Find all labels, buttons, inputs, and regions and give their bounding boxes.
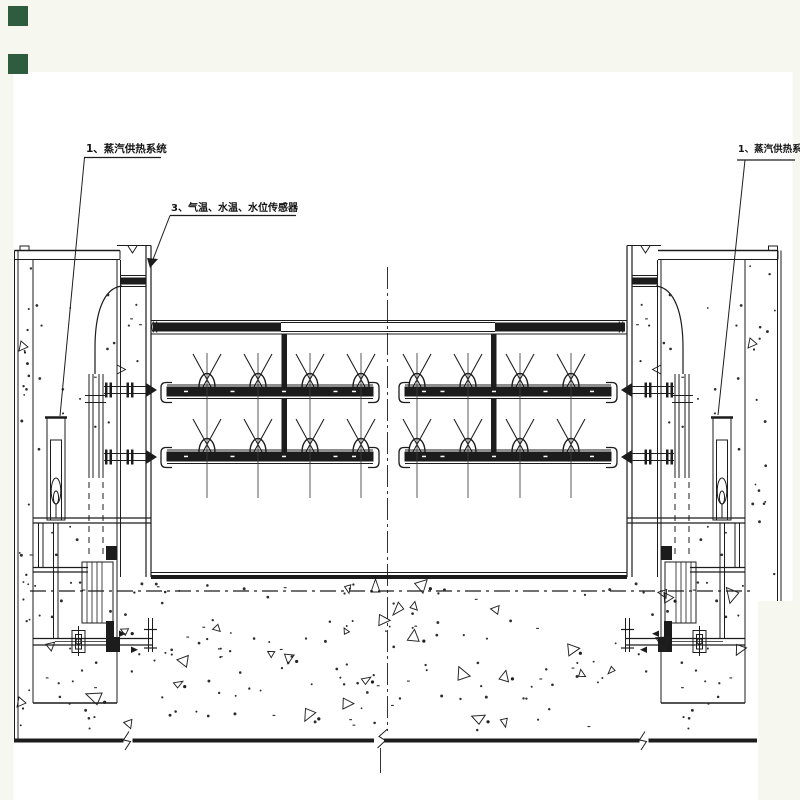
drawing-page: 1、蒸汽供热系统 3、气温、水温、水位传感器 1、蒸汽供热系统 [0,0,800,800]
marker-square-icon [8,6,28,26]
marker-square-icon [8,54,28,74]
label-sensors: 3、气温、水温、水位传感器 [171,201,299,214]
label-steam-system-right: 1、蒸汽供热系统 [738,143,800,155]
engineering-drawing: 1、蒸汽供热系统 3、气温、水温、水位传感器 1、蒸汽供热系统 [0,0,800,800]
drawing-paper [14,72,793,800]
page-margin-patch [758,601,800,800]
gate-sill [151,575,627,579]
label-steam-system-left: 1、蒸汽供热系统 [86,142,167,155]
